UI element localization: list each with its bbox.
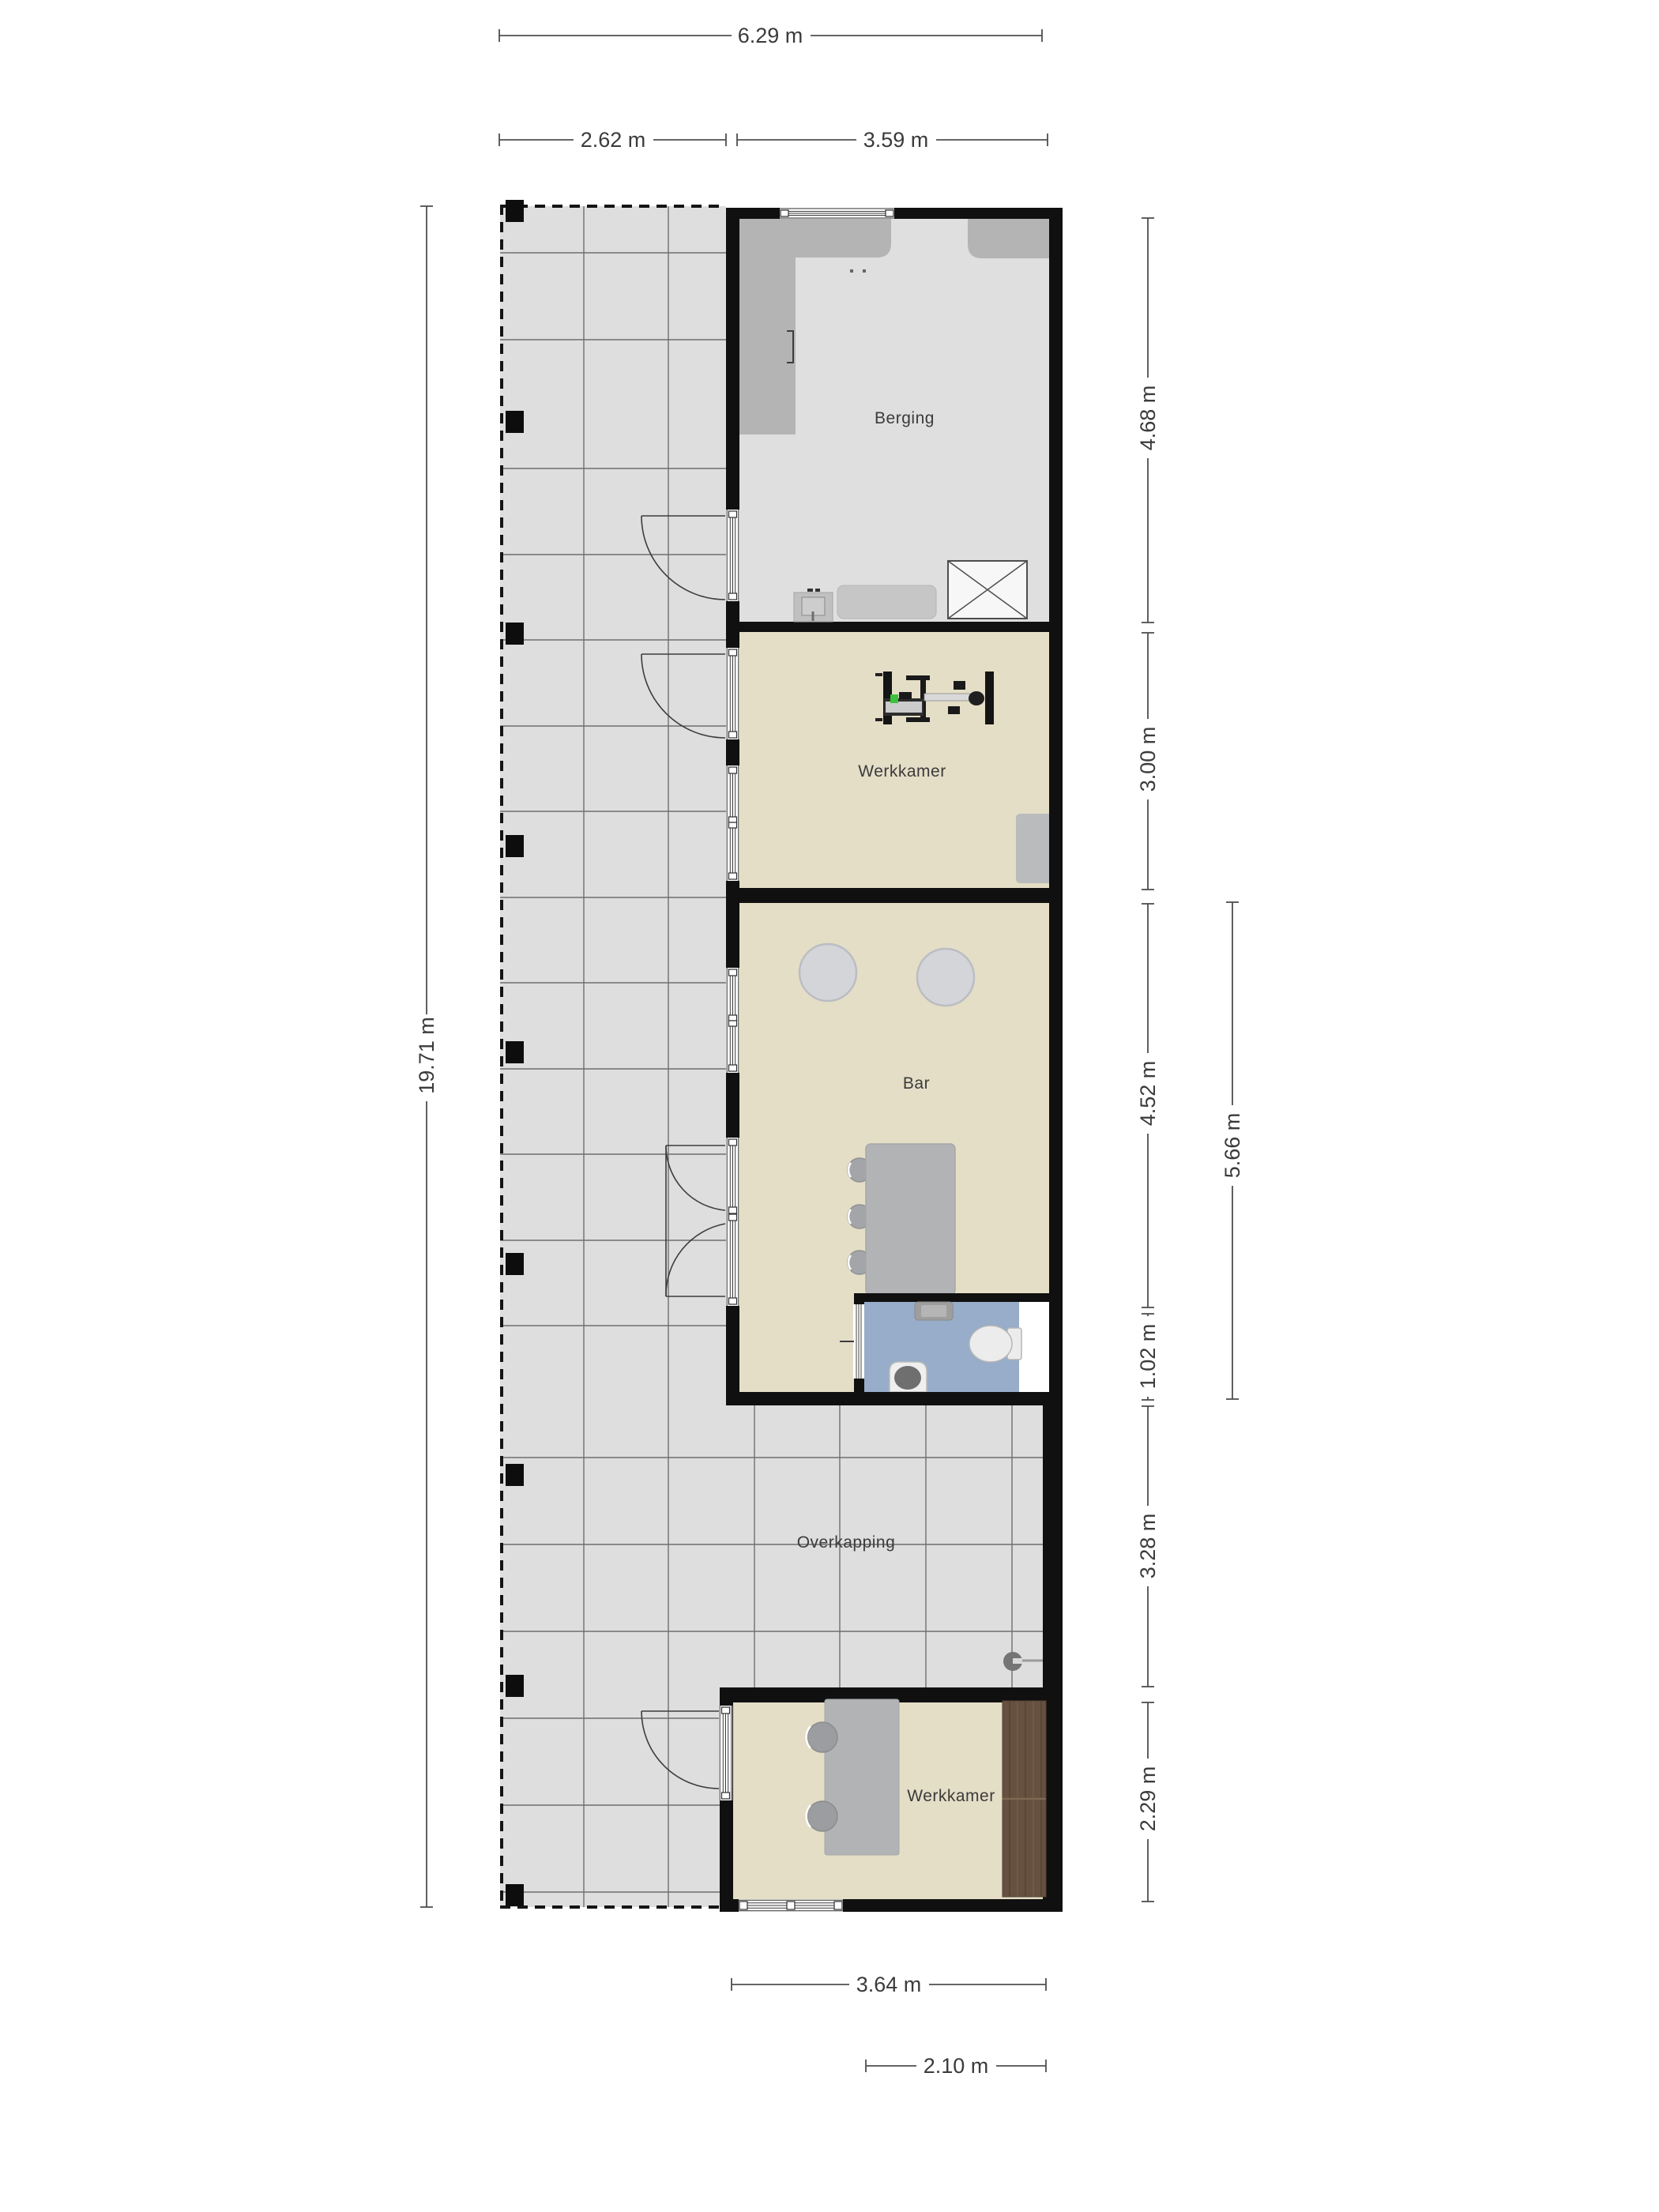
svg-text:4.52 m: 4.52 m (1136, 1061, 1160, 1127)
svg-text:3.00 m: 3.00 m (1136, 727, 1160, 792)
svg-text:4.68 m: 4.68 m (1136, 386, 1160, 451)
svg-text:Berging: Berging (875, 409, 935, 427)
svg-text:6.29 m: 6.29 m (738, 24, 803, 47)
svg-text:Werkkamer: Werkkamer (858, 762, 946, 781)
svg-text:Bar: Bar (903, 1074, 930, 1093)
svg-text:2.29 m: 2.29 m (1136, 1766, 1160, 1832)
svg-text:5.66 m: 5.66 m (1221, 1113, 1244, 1179)
svg-text:3.64 m: 3.64 m (856, 1973, 922, 1996)
svg-text:2.62 m: 2.62 m (581, 128, 646, 152)
svg-text:Overkapping: Overkapping (797, 1533, 896, 1552)
svg-text:3.28 m: 3.28 m (1136, 1514, 1160, 1579)
svg-text:19.71 m: 19.71 m (415, 1017, 438, 1094)
svg-text:3.59 m: 3.59 m (863, 128, 929, 152)
svg-text:Werkkamer: Werkkamer (907, 1787, 995, 1805)
svg-text:1.02 m: 1.02 m (1136, 1324, 1160, 1390)
svg-text:2.10 m: 2.10 m (924, 2054, 989, 2078)
